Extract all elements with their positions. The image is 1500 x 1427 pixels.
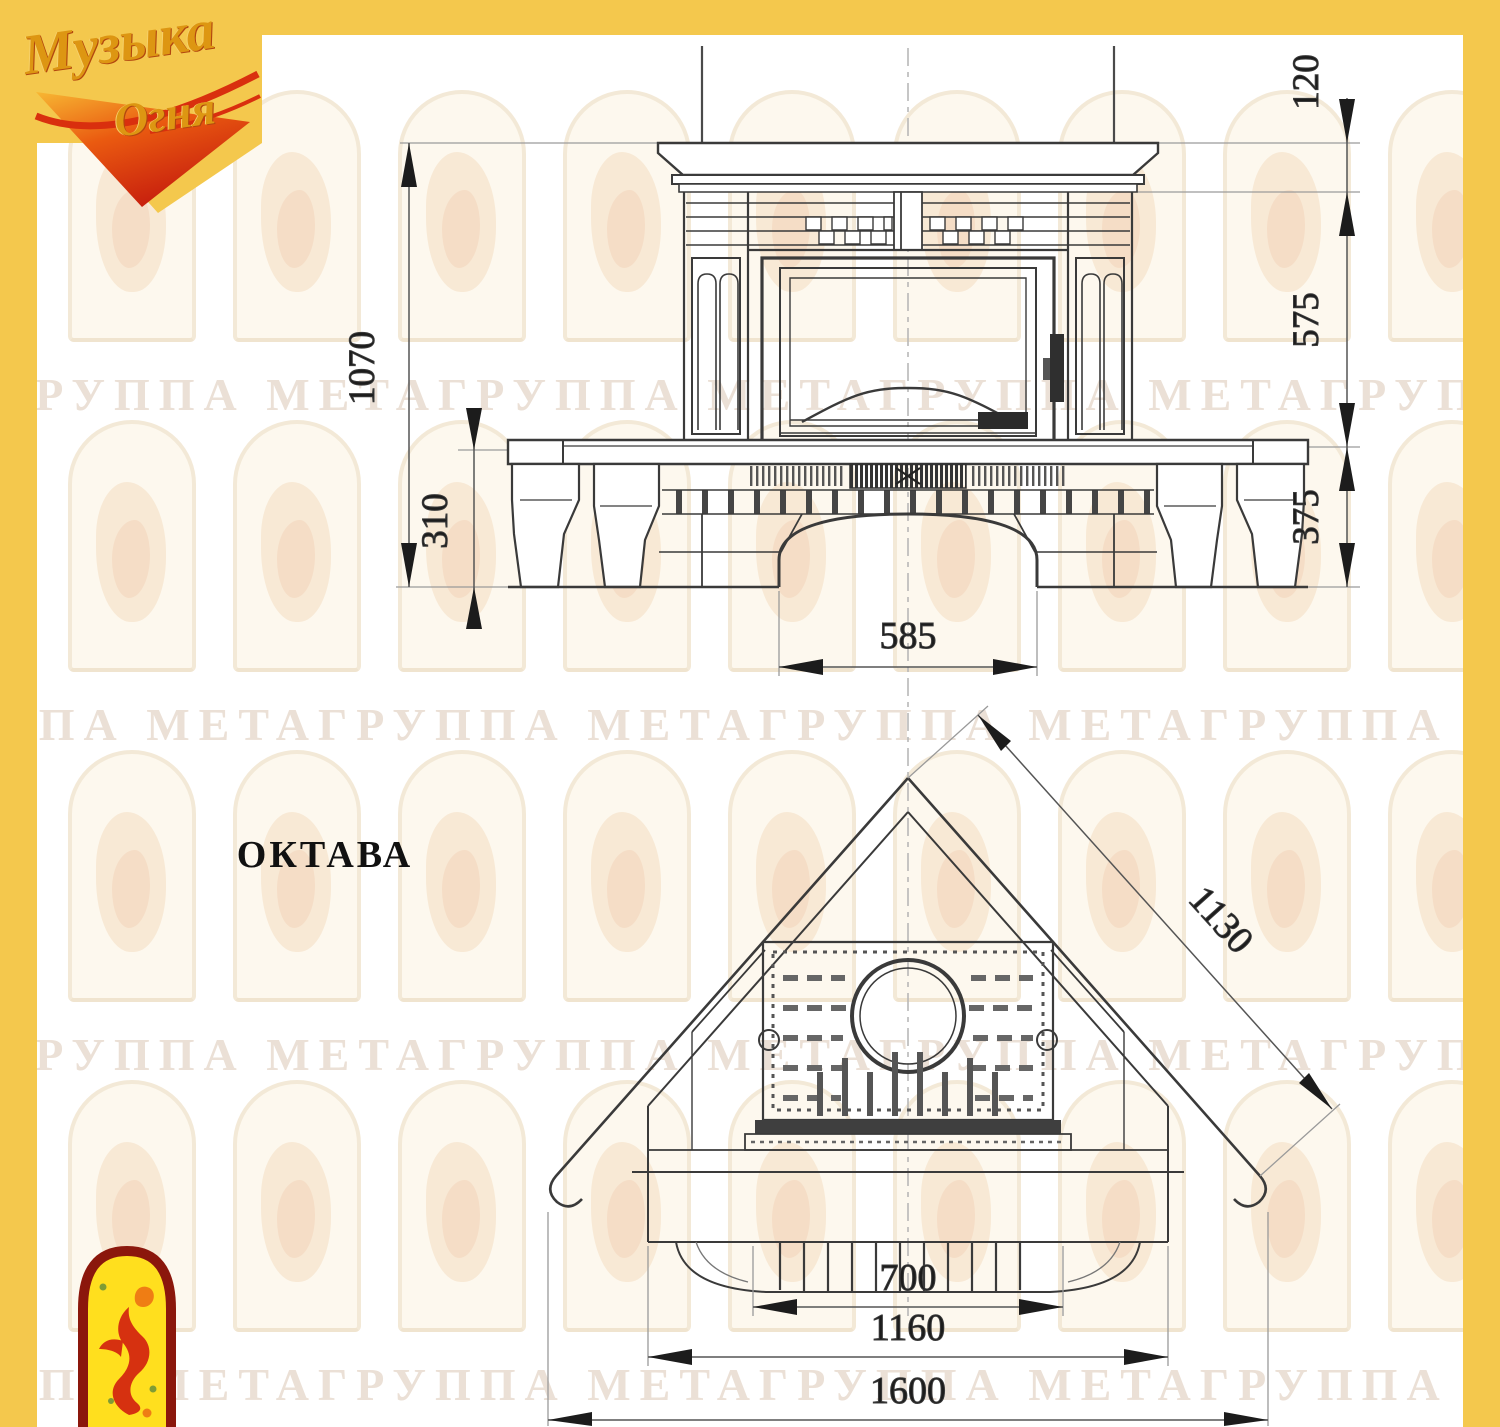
dim-body-height: 575: [1286, 292, 1327, 348]
dim-shelf-height: 120: [1286, 54, 1327, 110]
model-label: ОКТАВА: [200, 833, 450, 877]
dim-total-height: 1070: [342, 143, 417, 587]
dim-base-height: 375: [1286, 489, 1327, 545]
svg-text:1130: 1130: [1180, 878, 1261, 962]
dim-arch-width: 585: [779, 615, 1037, 675]
flame-dancer-logo-icon: [73, 1243, 181, 1427]
dim-firebox-width: 700: [753, 1246, 1063, 1316]
svg-text:310: 310: [415, 493, 456, 549]
svg-text:1070: 1070: [342, 331, 383, 405]
svg-text:1600: 1600: [870, 1370, 946, 1412]
svg-text:700: 700: [880, 1257, 937, 1299]
brand-logo: Музыка Огня: [0, 0, 268, 220]
page-root: ГРУППА МЕТАГРУППА МЕТАГРУППА МЕТАГРУППА …: [0, 0, 1500, 1427]
plan-view: 1130 700 1160 1600: [548, 706, 1340, 1426]
svg-text:1160: 1160: [871, 1307, 946, 1349]
dim-hearth-height: 310: [415, 408, 482, 629]
dim-right-chain: 120 575 375: [1286, 54, 1355, 587]
frame-right-border: [1463, 0, 1500, 1427]
svg-text:585: 585: [880, 615, 937, 657]
